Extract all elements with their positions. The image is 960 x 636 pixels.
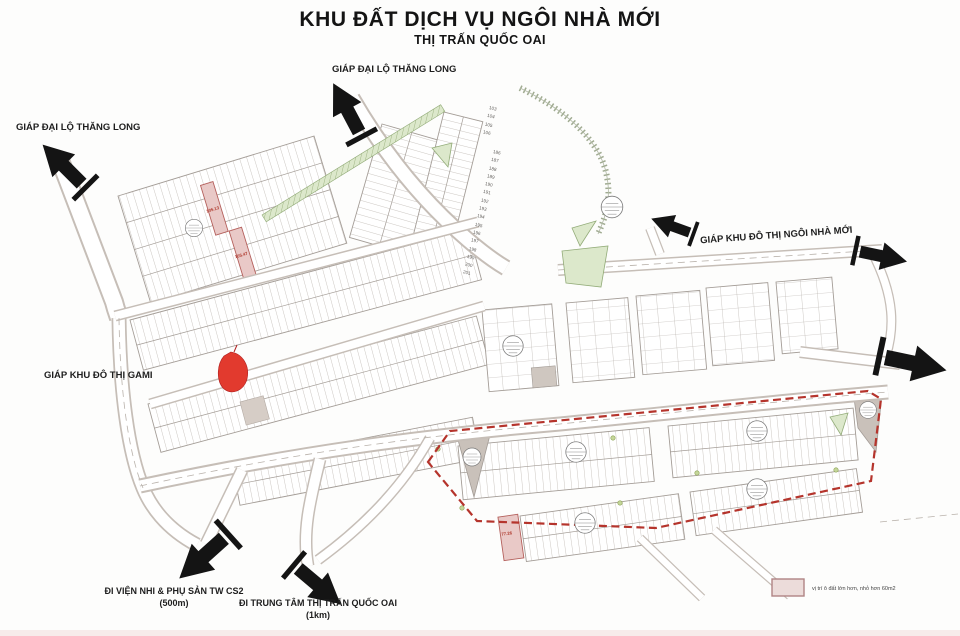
legend-text: vị trí ô đất lớn hơn, nhỏ hơn 60m2: [812, 585, 896, 592]
label-bottom-left-line2: (500m): [159, 598, 188, 608]
planning-map-page: 105.13 105.47: [0, 0, 960, 636]
green-triangle-center: [572, 221, 596, 246]
grid-block-3: [636, 290, 707, 374]
label-bottom-center-line2: (1km): [306, 610, 330, 620]
red-location-marker: [218, 345, 247, 392]
grid-block-4: [706, 283, 775, 366]
hatched-curve-edge: [520, 88, 608, 234]
page-subtitle: THỊ TRẤN QUỐC OAI: [0, 33, 960, 47]
page-bottom-strip: [0, 630, 960, 636]
legend-swatch: [772, 579, 804, 596]
label-left-area: GIÁP KHU ĐÔ THỊ GAMI: [44, 370, 153, 381]
grid-block-5: [776, 277, 838, 354]
hatched-curve-road: [520, 88, 608, 234]
page-title: KHU ĐẤT DỊCH VỤ NGÔI NHÀ MỚI: [0, 8, 960, 32]
grid-block-2: [566, 298, 635, 383]
land-plot-map: 105.13 105.47: [0, 0, 960, 636]
legend: vị trí ô đất lớn hơn, nhỏ hơn 60m2: [772, 579, 896, 596]
label-bottom-left-line1: ĐI VIỆN NHI & PHỤ SẢN TW CS2: [104, 586, 243, 596]
label-bottom-center-line1: ĐI TRUNG TÂM THỊ TRẤN QUỐC OAI: [239, 598, 397, 608]
service-strip-upper-2: [668, 408, 858, 478]
green-park: [562, 246, 608, 287]
label-top-center-road: GIÁP ĐẠI LỘ THĂNG LONG: [332, 64, 456, 75]
label-top-left-road: GIÁP ĐẠI LỘ THĂNG LONG: [16, 122, 140, 133]
